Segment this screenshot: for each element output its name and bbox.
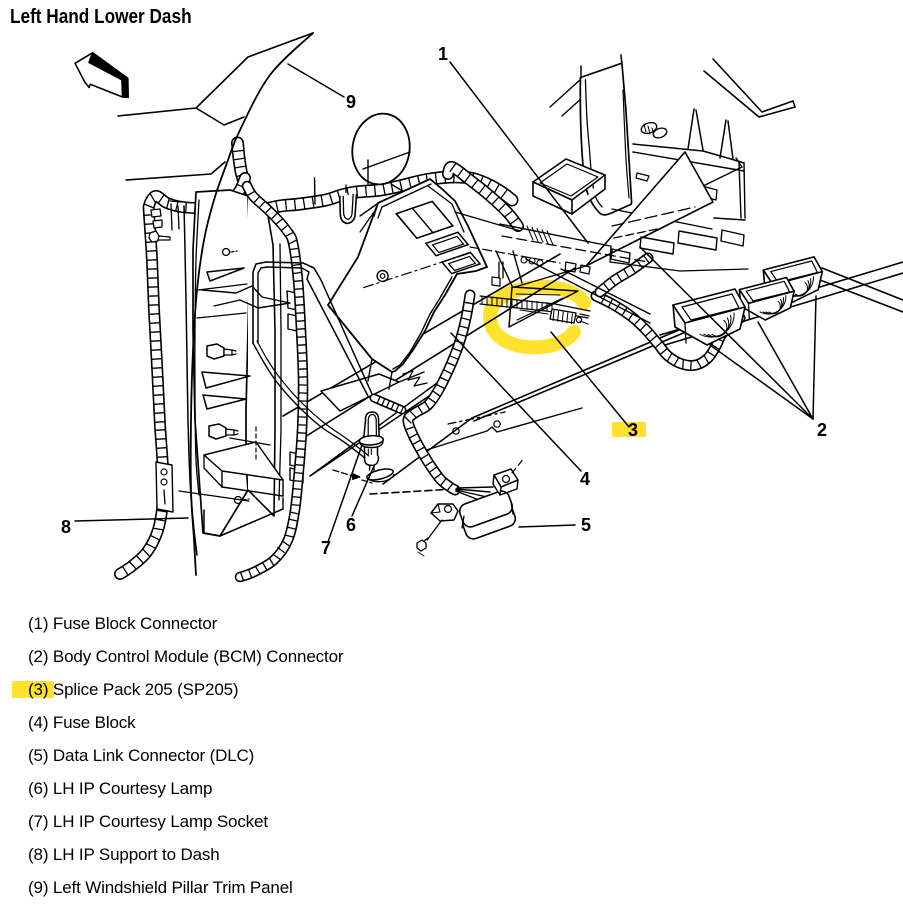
svg-text:5: 5 <box>581 515 591 535</box>
svg-text:1: 1 <box>438 44 448 64</box>
svg-text:3: 3 <box>628 420 638 440</box>
svg-text:8: 8 <box>61 517 71 537</box>
svg-text:7: 7 <box>321 538 331 558</box>
svg-text:4: 4 <box>580 469 590 489</box>
svg-text:6: 6 <box>346 515 356 535</box>
svg-text:2: 2 <box>817 420 827 440</box>
svg-text:9: 9 <box>346 92 356 112</box>
